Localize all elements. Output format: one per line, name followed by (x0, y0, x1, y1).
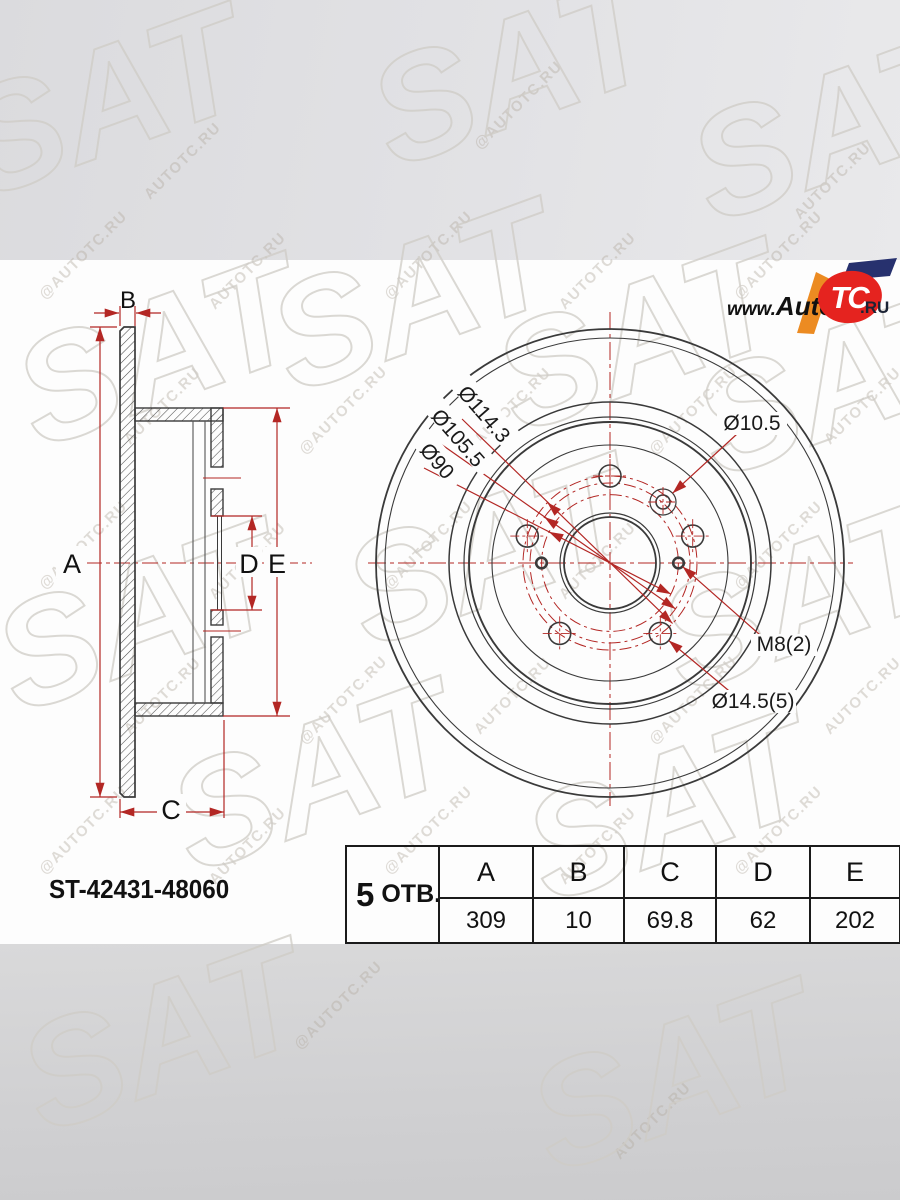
label-bolt-hole: Ø14.5(5) (710, 690, 796, 713)
table-value-d: 62 (715, 897, 809, 942)
holes-count-cell: 5 ОТВ. (347, 847, 438, 942)
dimension-label-b: B (120, 287, 136, 314)
part-number: ST-42431-48060 (49, 874, 229, 905)
technical-drawing: A B C D E (0, 0, 900, 1200)
table-value-a: 309 (438, 897, 532, 942)
table-header-a: A (438, 847, 532, 897)
svg-text:Ø14.5(5): Ø14.5(5) (712, 690, 795, 713)
section-plate (120, 327, 135, 797)
section-view: A B C D E (56, 287, 312, 825)
holes-suffix: ОТВ. (381, 880, 441, 909)
label-service-hole: M8(2) (751, 633, 817, 656)
table-value-b: 10 (532, 897, 623, 942)
dimension-label-a: A (63, 549, 81, 579)
screenshot-root: @AUTOTC.RUAUTOTC.RU@AUTOTC.RUAUTOTC.RU@A… (0, 0, 900, 1200)
table-value-c: 69.8 (623, 897, 715, 942)
spec-table: 5 ОТВ. A B C D E 309 10 69.8 62 202 (345, 845, 900, 944)
svg-text:M8(2): M8(2) (757, 633, 812, 656)
table-header-c: C (623, 847, 715, 897)
dimension-label-d: D (239, 549, 259, 579)
table-value-e: 202 (809, 897, 899, 942)
dimension-a (90, 327, 117, 797)
dimension-label-e: E (268, 549, 286, 579)
label-pilot-hole: Ø10.5 (717, 412, 787, 435)
front-view: Ø114.3 Ø105.5 Ø90 Ø10.5 M8(2) Ø14.5(5) (368, 312, 853, 806)
logo-text-ru: .RU (860, 298, 889, 317)
table-header-e: E (809, 847, 899, 897)
autotc-logo: www.Auto TC .RU (727, 258, 897, 334)
holes-count: 5 (356, 876, 374, 914)
table-header-b: B (532, 847, 623, 897)
table-header-d: D (715, 847, 809, 897)
dimension-label-c: C (161, 795, 181, 825)
svg-text:Ø10.5: Ø10.5 (723, 412, 780, 435)
